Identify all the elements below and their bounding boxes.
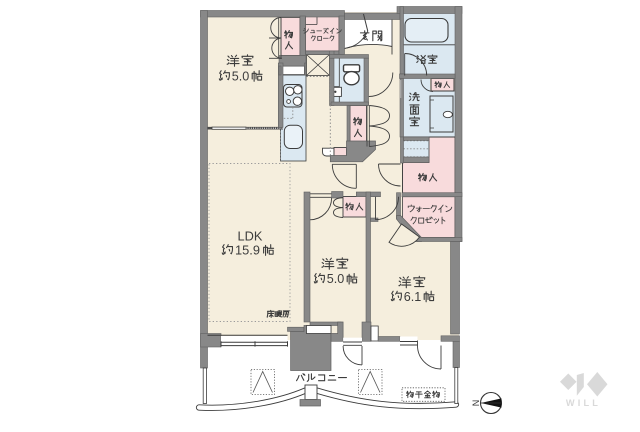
svg-text:5.0: 5.0 [232,69,250,83]
svg-text:15.9: 15.9 [235,242,260,257]
svg-text:5.0: 5.0 [327,272,345,286]
svg-text:LDK: LDK [238,228,263,243]
svg-text:N: N [471,400,481,407]
svg-text:6.1: 6.1 [404,290,422,304]
svg-text:WILL: WILL [566,398,601,408]
